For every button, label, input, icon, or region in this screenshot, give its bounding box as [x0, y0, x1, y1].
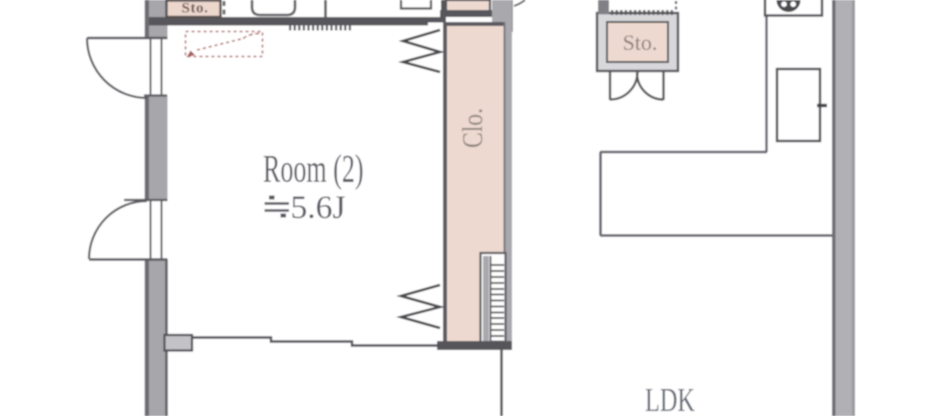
svg-text:Sto.: Sto.: [182, 1, 209, 17]
svg-text:Room (2): Room (2): [263, 148, 364, 191]
svg-text:Sto.: Sto.: [623, 30, 658, 55]
svg-text:Clo.: Clo.: [457, 108, 489, 148]
svg-text:5.6J: 5.6J: [291, 190, 346, 226]
svg-text:LDK: LDK: [645, 382, 695, 416]
